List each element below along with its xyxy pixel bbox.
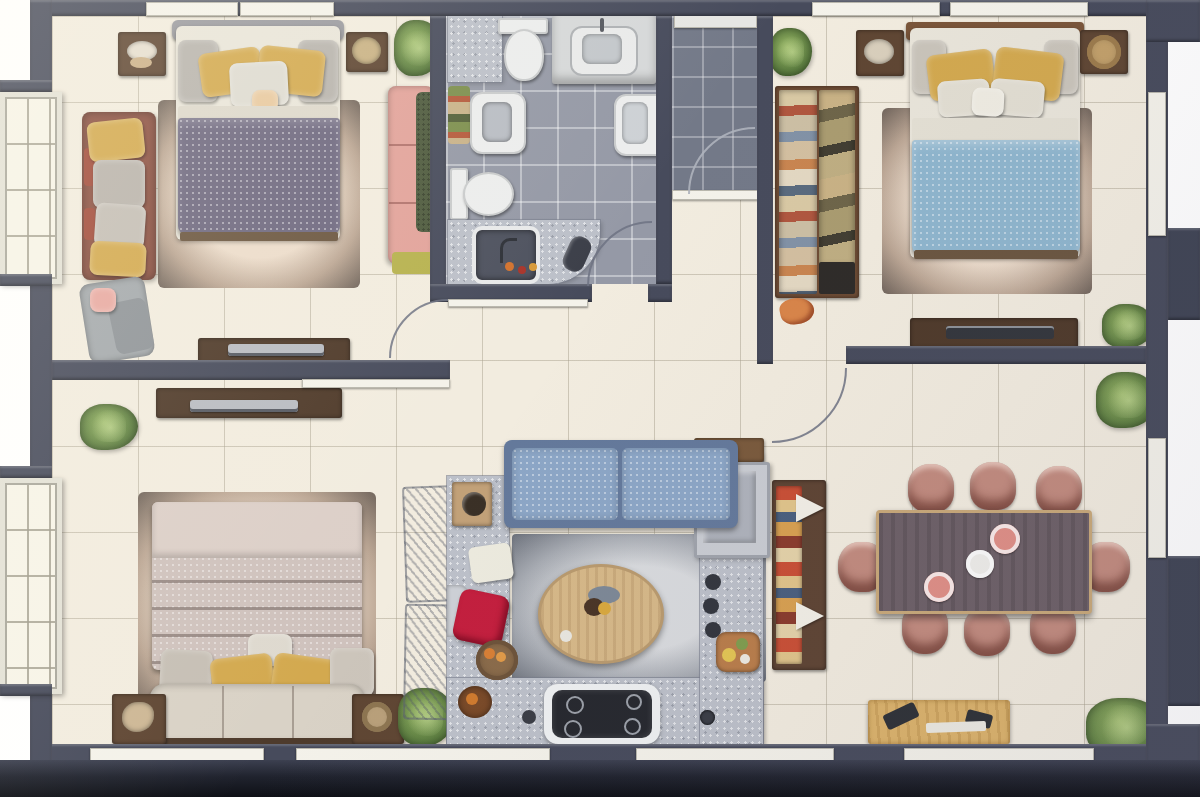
living-sofa-cushion-right bbox=[622, 448, 730, 520]
kitchen-fruit-orange-3 bbox=[466, 693, 478, 705]
window-top-bedroom2-a bbox=[812, 2, 940, 16]
bathroom-wall-sink-inner bbox=[622, 102, 648, 144]
bedroom1-footboard bbox=[180, 232, 338, 241]
bedroom2-duvet bbox=[912, 140, 1080, 254]
kitchen-burner-2 bbox=[626, 694, 642, 710]
kitchen-side-table-plate-white bbox=[740, 654, 750, 664]
entry-floor bbox=[672, 16, 757, 192]
bedroom2-footboard bbox=[914, 250, 1078, 259]
bedroom3-tv bbox=[190, 400, 298, 412]
bedroom1-nightstand-left-dish bbox=[130, 57, 152, 68]
entry-door-threshold bbox=[674, 15, 757, 28]
exterior-shadow bbox=[0, 760, 1200, 797]
bedroom3-bench-footboard bbox=[150, 684, 364, 744]
threshold-bedroom3 bbox=[302, 379, 450, 388]
bathroom-corner-counter bbox=[448, 16, 502, 82]
dining-plate-pink-1 bbox=[990, 524, 1020, 554]
living-coffee-table-cup bbox=[560, 630, 572, 642]
kitchen-burner-3 bbox=[564, 720, 582, 738]
wall-bedroom2-bottom bbox=[846, 346, 1146, 364]
bathroom-shower-faucet bbox=[500, 238, 517, 263]
bedroom2-wardrobe-clothes-right bbox=[819, 90, 855, 266]
wall-bath-right bbox=[656, 16, 672, 284]
threshold-bath bbox=[448, 299, 588, 307]
wall-bath-left bbox=[430, 16, 446, 288]
window-right-dining bbox=[1148, 438, 1166, 558]
bathroom-plants-decor bbox=[448, 86, 470, 144]
bay1-cap-top bbox=[0, 80, 52, 92]
kitchen-fruit-orange-2 bbox=[496, 652, 506, 662]
wall-bedroom1-divider bbox=[52, 360, 450, 380]
dining-chair-top-3 bbox=[1036, 466, 1082, 514]
kitchen-fruit-orange-1 bbox=[484, 648, 495, 659]
kitchen-napkins bbox=[468, 542, 515, 583]
bedroom2-wardrobe-shelf-dark bbox=[819, 262, 855, 294]
dining-chair-top-2 bbox=[970, 462, 1016, 510]
dining-chair-top-1 bbox=[908, 464, 954, 512]
living-coffee-table-fruit bbox=[598, 602, 611, 615]
bathroom-basin-sink-inner bbox=[482, 102, 512, 142]
wall-pillar-right-2 bbox=[1168, 556, 1200, 706]
floor-plan bbox=[0, 0, 1200, 797]
dining-sideboard-triangle-2 bbox=[796, 602, 824, 630]
dining-plate-white bbox=[966, 550, 994, 578]
kitchen-burner-1 bbox=[566, 696, 584, 714]
kitchen-knob-col-1 bbox=[705, 574, 721, 590]
dining-chair-bottom-2 bbox=[964, 608, 1010, 656]
dining-sideboard-triangle-1 bbox=[796, 494, 824, 522]
bay-window-bedroom1 bbox=[0, 92, 62, 284]
kitchen-burner-4 bbox=[624, 718, 641, 735]
entry-hall-threshold bbox=[672, 190, 759, 200]
wall-bedroom2-left bbox=[757, 16, 773, 364]
bedroom1-sofa-pillow-yellow-bottom bbox=[89, 241, 147, 278]
window-top-bedroom1-a bbox=[146, 2, 238, 16]
bedroom2-wardrobe-clothes-left bbox=[779, 90, 817, 294]
window-top-bedroom2-b bbox=[950, 2, 1088, 16]
bedroom1-nightstand-right-bowl bbox=[352, 37, 381, 64]
bay2-cap-top bbox=[0, 466, 52, 478]
dining-plate-pink-2 bbox=[924, 572, 954, 602]
bedroom1-sofa-pillow-gray1 bbox=[93, 160, 145, 208]
bathroom-toilet-left-bowl bbox=[463, 172, 514, 216]
bedroom1-sofa-pillow-yellow-top bbox=[86, 117, 146, 163]
kitchen-red-cushion bbox=[451, 587, 511, 648]
bedroom2-tv bbox=[946, 326, 1054, 339]
bay-window-bedroom3 bbox=[0, 478, 62, 694]
kitchen-knob bbox=[522, 710, 536, 724]
wall-pillar-right-1 bbox=[1168, 228, 1200, 320]
window-top-bedroom1-b bbox=[240, 2, 334, 16]
bedroom1-tv bbox=[228, 344, 324, 356]
bedroom2-cushion-white-small bbox=[971, 87, 1004, 117]
bathroom-fruit-2 bbox=[518, 266, 526, 274]
bedroom1-lounge-pillow-pink bbox=[90, 288, 116, 312]
bathroom-vanity-sink-inner bbox=[582, 34, 622, 64]
bedroom1-duvet bbox=[178, 118, 340, 234]
kitchen-side-table-plate-green bbox=[736, 638, 748, 650]
kitchen-kettle bbox=[462, 492, 486, 516]
bathroom-toilet-top-bowl bbox=[504, 29, 544, 81]
bedroom2-nightstand-left-bowl bbox=[864, 39, 894, 64]
bay1-cap-bottom bbox=[0, 274, 52, 286]
bedroom3-nightstand-right-decor bbox=[362, 702, 392, 732]
wall-bath-bottom-b bbox=[648, 284, 672, 302]
window-right-bedroom2 bbox=[1148, 92, 1166, 236]
bathroom-fruit-3 bbox=[529, 263, 537, 271]
wall-corner-topright bbox=[1146, 0, 1200, 42]
kitchen-knob-col-2 bbox=[703, 598, 719, 614]
bedroom3-bench-seam2 bbox=[292, 686, 294, 742]
kitchen-side-table-plate-yellow bbox=[722, 648, 736, 662]
bedroom3-bench-seam1 bbox=[222, 686, 224, 742]
living-sofa-cushion-left bbox=[512, 448, 618, 520]
dining-console-tray bbox=[926, 721, 986, 733]
bedroom2-nightstand-right-basket bbox=[1087, 35, 1121, 69]
bathroom-vanity-faucet bbox=[600, 18, 604, 32]
bay2-cap-bottom bbox=[0, 684, 52, 696]
kitchen-drain bbox=[700, 710, 715, 725]
bedroom3-duvet-top-band bbox=[152, 502, 362, 558]
bathroom-fruit-1 bbox=[505, 262, 514, 271]
